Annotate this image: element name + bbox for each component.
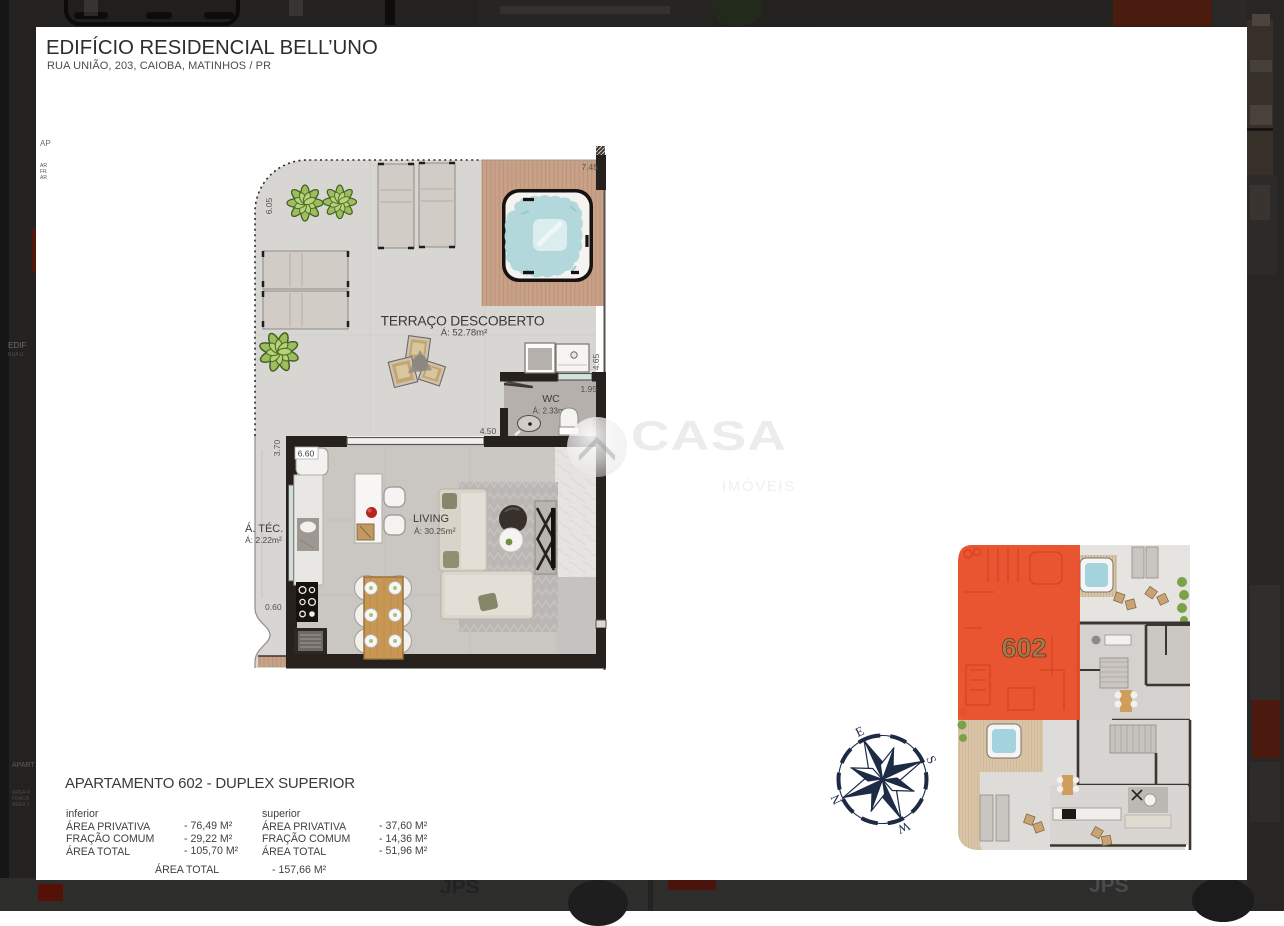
svg-text:LIVING: LIVING xyxy=(413,513,449,525)
svg-text:4.50: 4.50 xyxy=(480,426,497,436)
svg-text:6.05: 6.05 xyxy=(264,197,274,214)
svg-text:N: N xyxy=(827,792,845,807)
svg-text:Á: 52.78m²: Á: 52.78m² xyxy=(441,328,487,339)
svg-text:WC: WC xyxy=(542,393,560,405)
svg-text:TERRAÇO DESCOBERTO: TERRAÇO DESCOBERTO xyxy=(381,314,545,329)
svg-text:0.60: 0.60 xyxy=(265,602,282,612)
svg-text:Á. TÉC.: Á. TÉC. xyxy=(245,522,283,535)
svg-text:602: 602 xyxy=(1001,633,1046,663)
svg-text:E: E xyxy=(853,723,867,740)
svg-text:7.45: 7.45 xyxy=(581,162,598,172)
svg-text:6.60: 6.60 xyxy=(298,449,315,459)
svg-text:1.95: 1.95 xyxy=(580,384,597,394)
svg-text:Á: 30.25m²: Á: 30.25m² xyxy=(414,526,456,536)
svg-text:4.65: 4.65 xyxy=(591,353,601,370)
svg-text:S: S xyxy=(923,753,940,766)
svg-text:3.70: 3.70 xyxy=(272,439,282,456)
svg-text:Á: 2.22m²: Á: 2.22m² xyxy=(245,535,282,545)
